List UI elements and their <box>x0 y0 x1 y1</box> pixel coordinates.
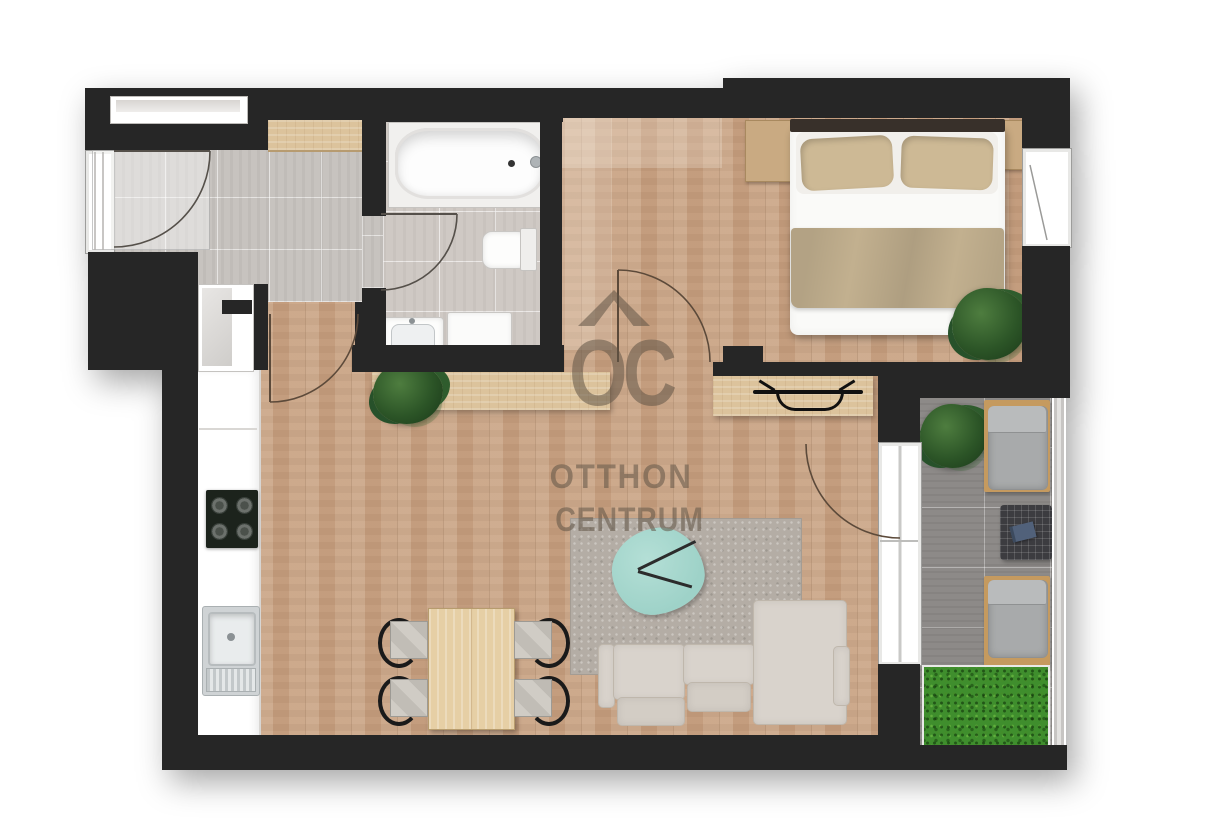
cooktop-burner <box>236 523 253 540</box>
dining-chair-seat <box>514 621 552 659</box>
wall-left-lower <box>162 370 198 760</box>
floor-plan-canvas: OC OTTHON CENTRUM <box>0 0 1225 832</box>
wall-hall-bath-upper <box>362 120 386 216</box>
wall-right-upper <box>1022 78 1070 148</box>
bed-headboard <box>790 119 1005 132</box>
bathtub-drain <box>508 160 515 167</box>
wall-bedroom-top-left <box>563 88 723 118</box>
wall-hall-living-seg-b <box>355 302 378 347</box>
lounger-pillow-bottom <box>988 580 1046 605</box>
bed-pillow <box>900 135 994 190</box>
dining-chair-seat <box>390 679 428 717</box>
sofa-back-cushion-left <box>617 697 685 726</box>
kitchen-faucet <box>227 633 235 641</box>
sofa-seat-left <box>613 644 685 700</box>
washbasin-faucet <box>409 318 415 324</box>
kitchen-cabinet-divider <box>199 428 257 430</box>
wall-balcony-bottom <box>890 745 1067 770</box>
wall-hall-lower-left <box>88 252 198 370</box>
cooktop-burner <box>211 497 228 514</box>
wall-bottom <box>162 735 908 770</box>
cooktop-burner <box>236 497 253 514</box>
wall-bath-bottom <box>352 345 564 372</box>
dining-chair-seat <box>514 679 552 717</box>
bed-pillow <box>800 135 895 192</box>
tv-stand <box>776 392 844 411</box>
bathtub <box>395 128 545 199</box>
utility-niche-step <box>222 300 252 314</box>
wall-bedroom-bottom-notch <box>723 346 763 362</box>
sofa-back-cushion-middle <box>687 682 751 712</box>
bedroom-floor-light-band <box>560 118 722 168</box>
kitchen-drainer <box>206 668 256 692</box>
entrance-door-panel <box>92 150 210 250</box>
wall-hall-top <box>85 122 268 150</box>
hall-closet-inner <box>116 100 240 112</box>
wall-bedroom-bottom-left <box>713 362 895 376</box>
lounger-pillow-top <box>988 406 1046 433</box>
grass-patch <box>922 665 1050 747</box>
dining-table <box>428 608 515 730</box>
balcony-sliding-door-split <box>880 540 918 542</box>
wall-living-balcony-upper <box>878 362 920 442</box>
bedroom-window <box>1022 148 1072 248</box>
sofa-armrest-right <box>833 646 850 706</box>
wall-bedroom-bottom-right <box>895 362 1070 398</box>
dining-chair-seat <box>390 621 428 659</box>
toilet-tank <box>520 228 537 271</box>
sofa-seat-middle <box>683 644 755 685</box>
balcony-railing <box>1052 398 1066 748</box>
apartment-floor-plan: OC OTTHON CENTRUM <box>0 0 1225 832</box>
wall-niche-side <box>252 284 268 370</box>
wall-bath-bedroom <box>540 88 562 372</box>
wall-bedroom-top-right <box>723 78 1070 118</box>
cooktop-burner <box>211 523 228 540</box>
balcony-sliding-door <box>878 442 922 666</box>
